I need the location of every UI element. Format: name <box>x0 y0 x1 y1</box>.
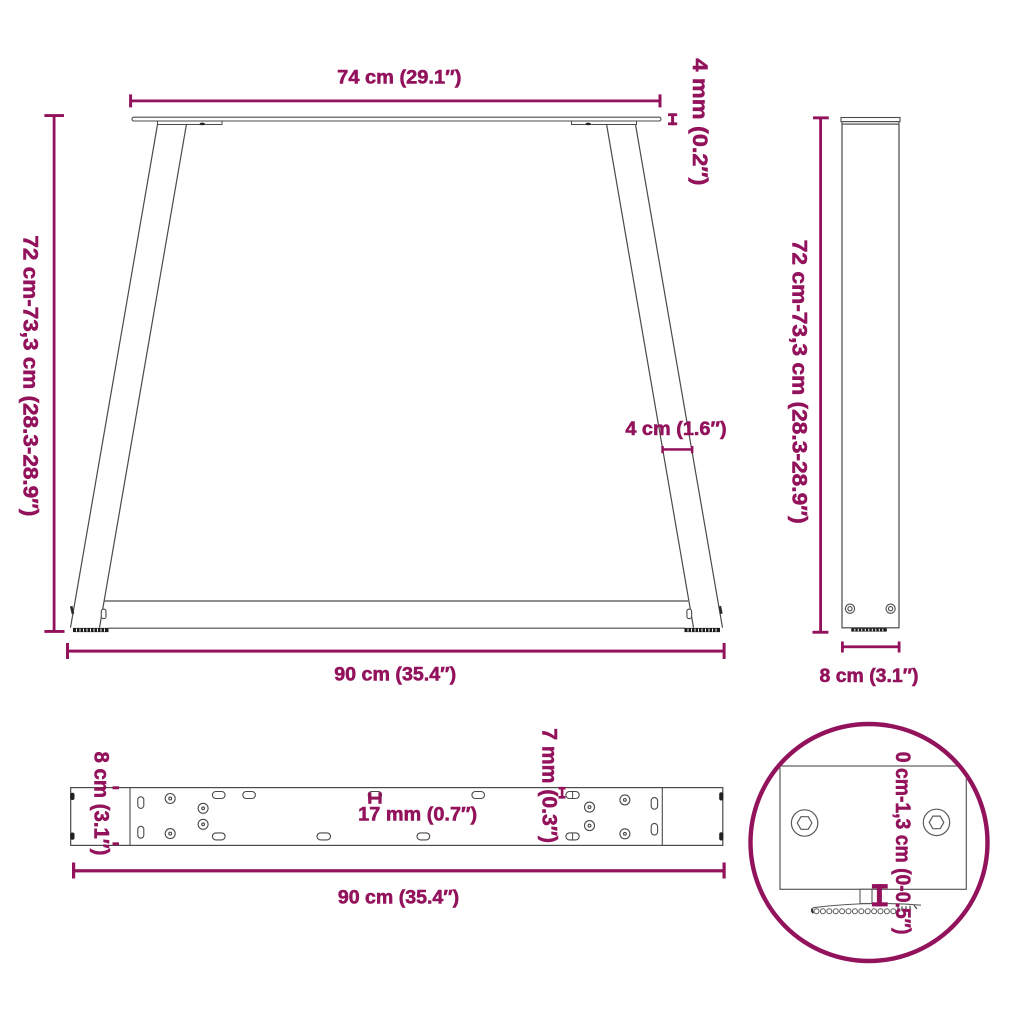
svg-text:4 mm (0.2″): 4 mm (0.2″) <box>688 58 711 185</box>
svg-text:72 cm-73,3 cm (28.3-28.9″): 72 cm-73,3 cm (28.3-28.9″) <box>788 240 811 524</box>
svg-text:8 cm (3.1″): 8 cm (3.1″) <box>820 666 919 687</box>
svg-text:8 cm (3.1″): 8 cm (3.1″) <box>89 752 112 856</box>
svg-text:72 cm-73,3 cm (28.3-28.9″): 72 cm-73,3 cm (28.3-28.9″) <box>18 235 41 516</box>
svg-text:17 mm (0.7″): 17 mm (0.7″) <box>358 805 477 826</box>
svg-text:90 cm (35.4″): 90 cm (35.4″) <box>338 888 459 909</box>
svg-text:0 cm-1,3 cm (0-0.5″): 0 cm-1,3 cm (0-0.5″) <box>891 752 914 935</box>
svg-text:4 cm (1.6″): 4 cm (1.6″) <box>625 419 726 440</box>
svg-text:90 cm (35.4″): 90 cm (35.4″) <box>334 664 456 685</box>
svg-text:7 mm (0.3″): 7 mm (0.3″) <box>538 728 561 843</box>
svg-text:74 cm (29.1″): 74 cm (29.1″) <box>337 68 461 89</box>
